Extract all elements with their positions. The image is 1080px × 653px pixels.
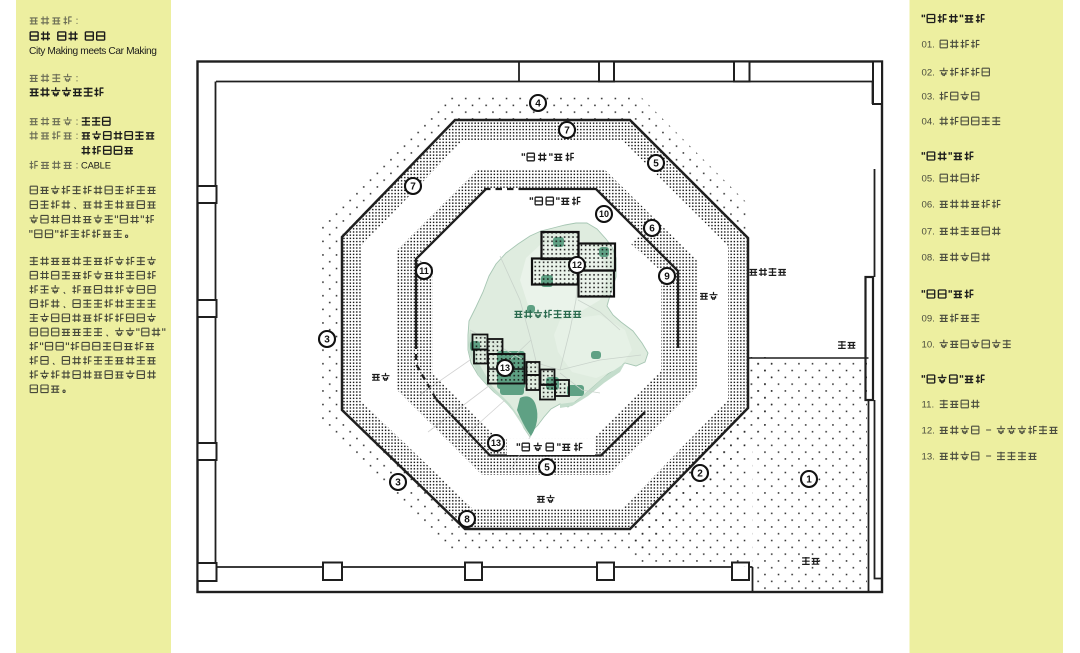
svg-text:03.: 03. [922, 92, 935, 103]
svg-text:4: 4 [535, 99, 541, 110]
svg-text:02.: 02. [922, 68, 935, 79]
svg-text:7: 7 [564, 126, 570, 137]
svg-text:6: 6 [649, 224, 655, 235]
svg-text:07.: 07. [922, 227, 935, 238]
svg-text:06.: 06. [922, 200, 935, 211]
svg-text:1: 1 [806, 475, 812, 486]
svg-text:04.: 04. [922, 117, 935, 128]
svg-text:01.: 01. [922, 40, 935, 51]
svg-text:10: 10 [599, 209, 609, 219]
svg-text:5: 5 [544, 463, 550, 474]
svg-text:11: 11 [419, 266, 429, 276]
svg-text:3: 3 [324, 335, 330, 346]
svg-text:8: 8 [464, 515, 470, 526]
svg-text:3: 3 [395, 478, 401, 489]
svg-text:7: 7 [410, 182, 416, 193]
svg-text:13: 13 [500, 363, 510, 373]
svg-text:08.: 08. [922, 253, 935, 264]
svg-text:CABLE: CABLE [81, 159, 111, 170]
svg-text:12: 12 [572, 260, 582, 270]
svg-text:9: 9 [664, 272, 670, 283]
svg-text:5: 5 [653, 159, 659, 170]
svg-text:2: 2 [697, 469, 703, 480]
svg-text:10.: 10. [922, 340, 935, 351]
svg-text:13: 13 [491, 438, 501, 448]
svg-text:11.: 11. [922, 400, 935, 411]
svg-text:City Making meets Car Making: City Making meets Car Making [29, 46, 157, 57]
svg-text:12.: 12. [922, 426, 935, 437]
svg-text:13.: 13. [922, 452, 935, 463]
svg-text:05.: 05. [922, 174, 935, 185]
svg-text:09.: 09. [922, 314, 935, 325]
